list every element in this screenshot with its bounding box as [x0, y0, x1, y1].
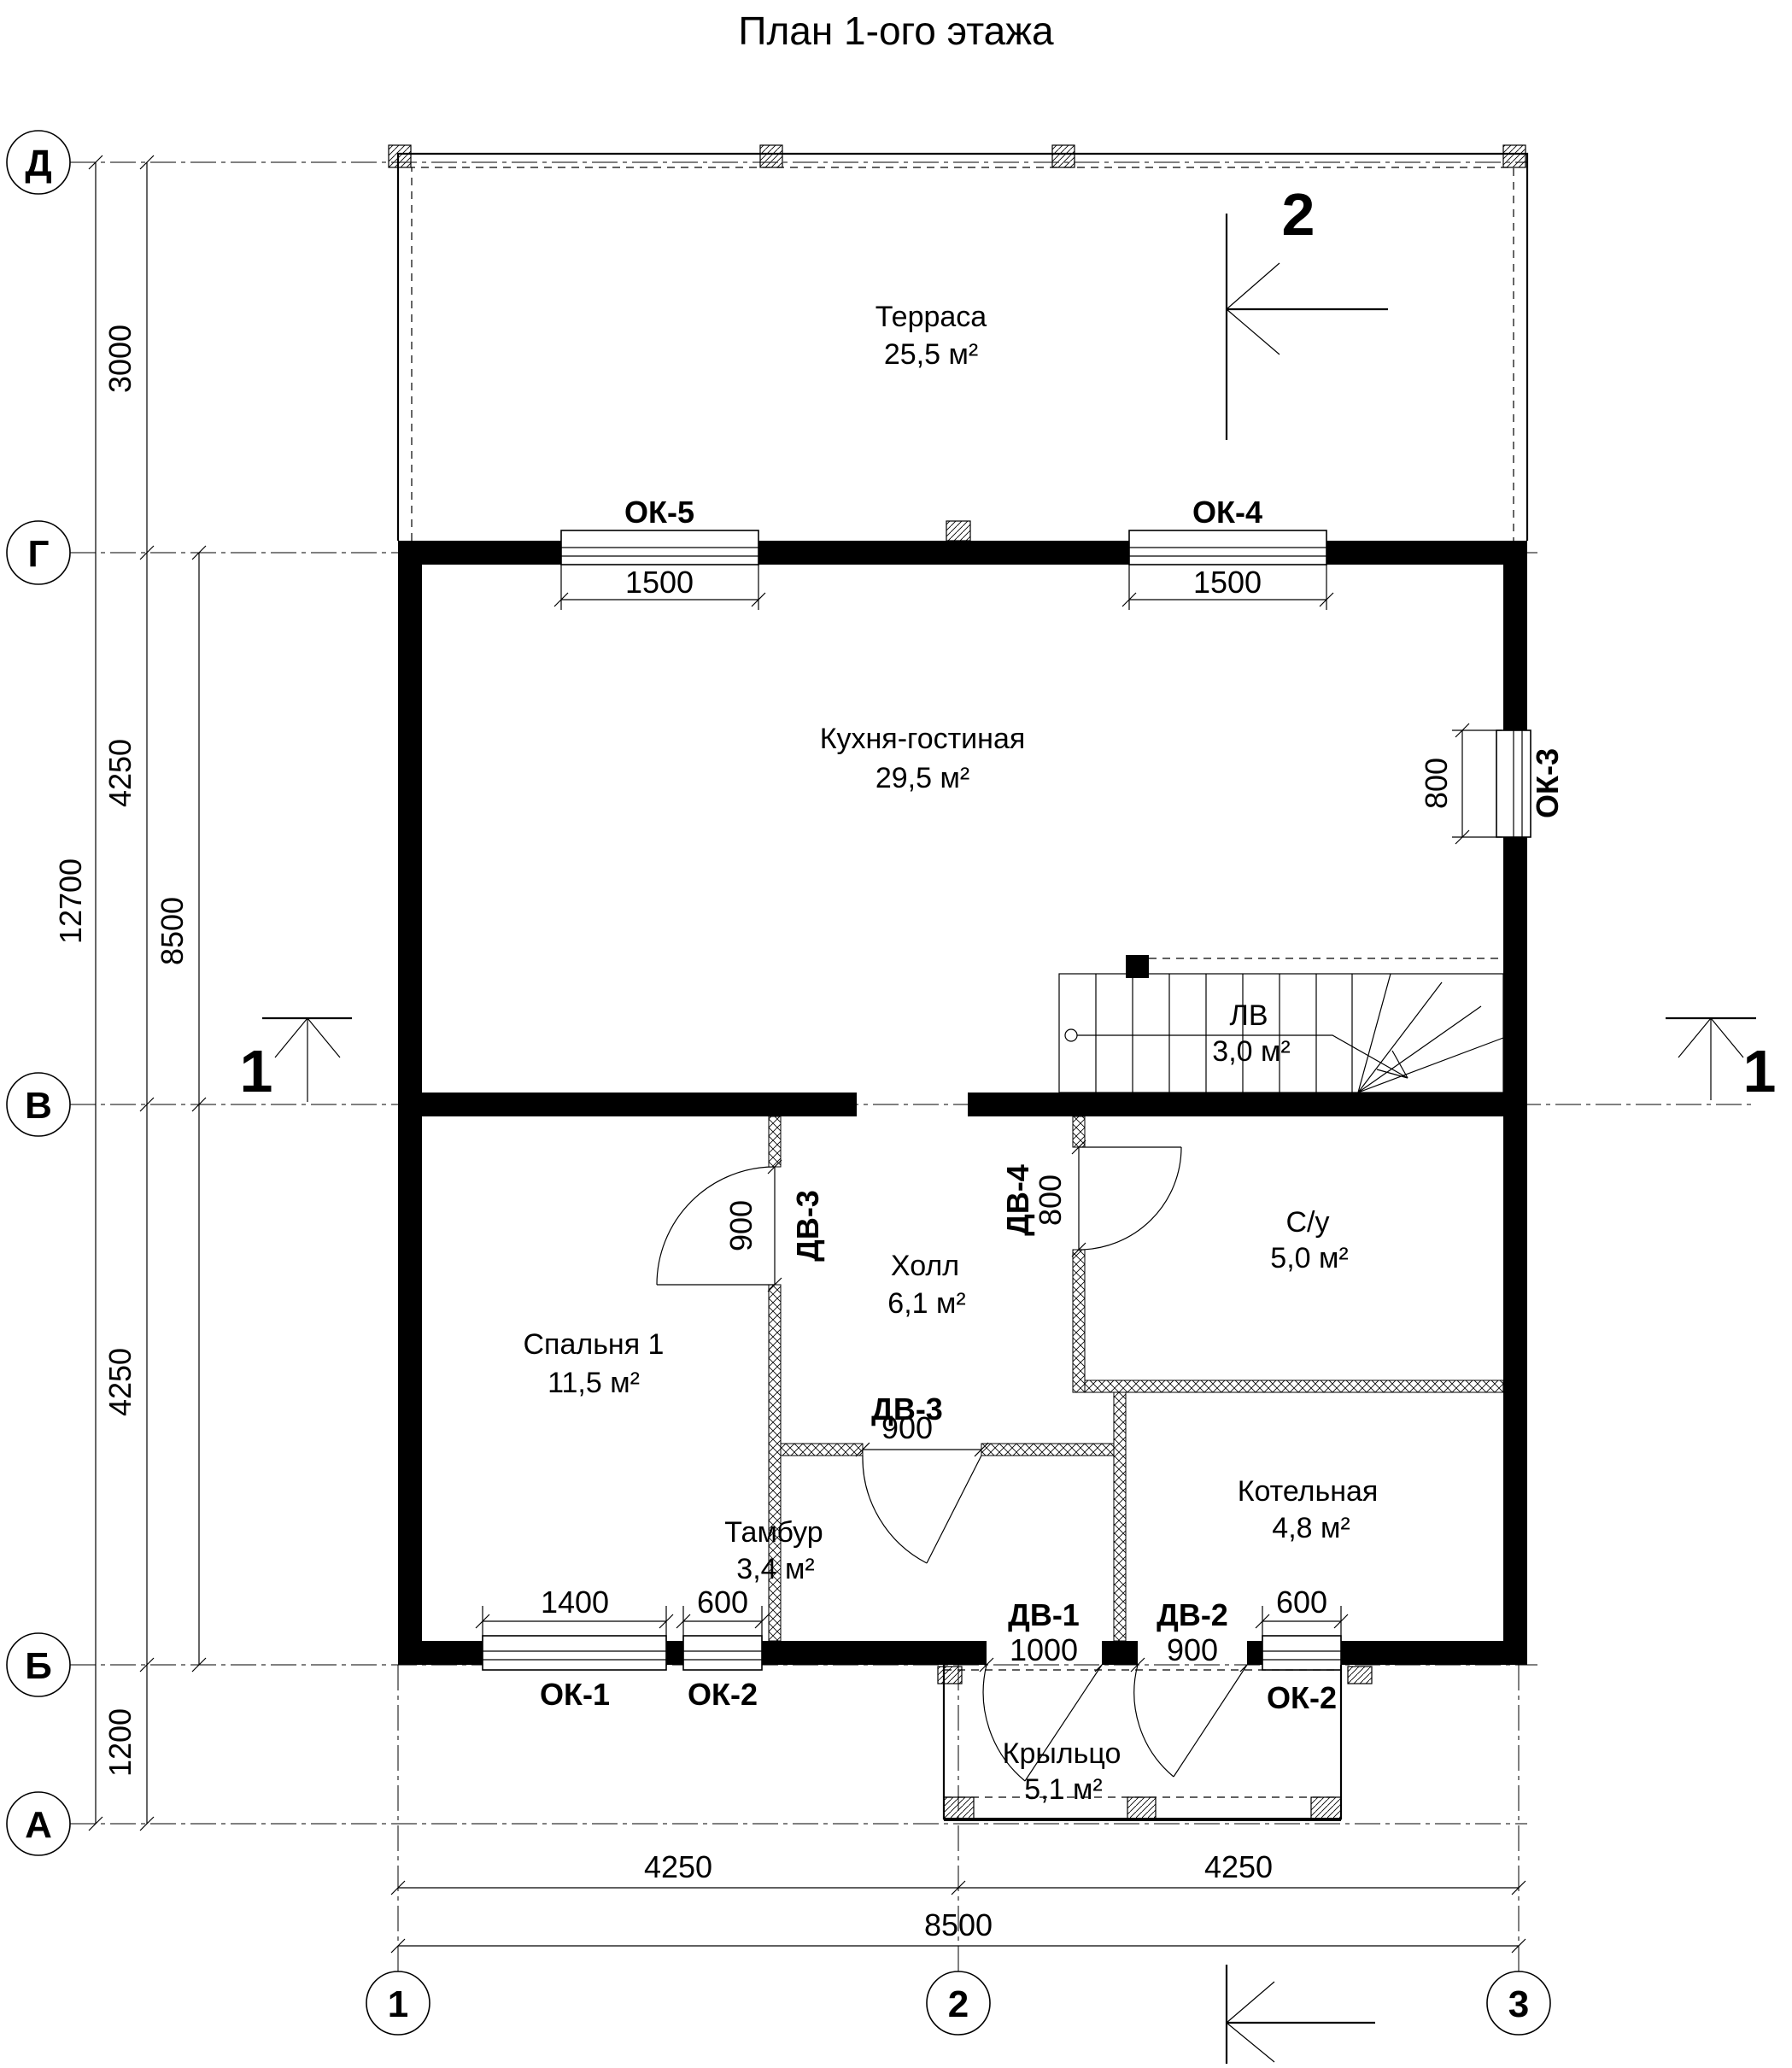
page-title: План 1-ого этажа — [738, 9, 1054, 53]
floor-plan-canvas: План 1-ого этажа 3000 4250 4250 1200 127… — [0, 0, 1792, 2064]
porch-area: 5,1 м² — [1024, 1773, 1102, 1806]
bathroom-area: 5,0 м² — [1270, 1242, 1348, 1274]
dim-text-8500-left: 8500 — [155, 897, 190, 965]
dim-text-4250-top: 4250 — [102, 739, 138, 807]
stair-column — [1126, 955, 1149, 978]
axis-label-a: А — [25, 1804, 52, 1846]
section-marks: 2 1 1 — [240, 181, 1777, 2064]
window-ok1-dim: 1400 — [541, 1585, 609, 1620]
hall-area: 6,1 м² — [887, 1287, 965, 1320]
terrace-post-mid1 — [760, 145, 782, 167]
stair-treads — [1096, 974, 1352, 1093]
stair-outline — [1059, 974, 1503, 1093]
wall-left — [398, 541, 422, 1665]
window-ok2-left: 600 ОК-2 — [676, 1585, 769, 1712]
terrace-name: Терраса — [876, 301, 987, 333]
porch-post-top-right — [1348, 1667, 1372, 1684]
axis-label-v: В — [25, 1085, 52, 1127]
partition-vestibule-left — [781, 1444, 863, 1456]
partition-bedroom-top — [769, 1116, 781, 1167]
window-ok3-label: ОК-3 — [1530, 748, 1565, 818]
axis-label-b: Б — [25, 1645, 52, 1687]
porch-post-mid — [1127, 1797, 1156, 1819]
door-dv3v-leaf — [927, 1456, 981, 1563]
door-dv3-bedroom: 900 ДВ-3 — [657, 1160, 825, 1292]
boiler-name: Котельная — [1238, 1475, 1379, 1508]
wall-v-1 — [422, 1093, 857, 1116]
section-2-label: 2 — [1282, 181, 1315, 248]
bathroom-name: С/у — [1286, 1206, 1330, 1239]
window-ok5-label: ОК-5 — [624, 495, 694, 530]
wall-bottom-1 — [398, 1641, 483, 1665]
wall-bottom-5 — [1247, 1641, 1262, 1665]
window-ok1-frame — [483, 1636, 666, 1670]
wall-top-2 — [758, 541, 1129, 565]
wall-bottom-3 — [762, 1641, 987, 1665]
window-ok2r-label: ОК-2 — [1267, 1680, 1337, 1715]
dim-text-8500-bottom: 8500 — [924, 1907, 993, 1942]
boiler-area: 4,8 м² — [1272, 1512, 1350, 1544]
terrace-post-axis2 — [946, 521, 970, 541]
door-dv1-label: ДВ-1 — [1008, 1597, 1080, 1632]
window-ok2l-frame — [683, 1636, 762, 1670]
axis-label-2: 2 — [948, 1983, 969, 2025]
axis-label-g: Г — [28, 533, 50, 575]
door-dv2-label: ДВ-2 — [1157, 1597, 1228, 1632]
door-dv4-label: ДВ-4 — [1000, 1164, 1035, 1236]
stair-winders — [1358, 974, 1503, 1093]
window-ok1: 1400 ОК-1 — [476, 1585, 673, 1712]
axis-label-3: 3 — [1508, 1983, 1529, 2025]
bedroom-name: Спальня 1 — [524, 1328, 665, 1361]
stairs-area: 3,0 м² — [1212, 1035, 1290, 1068]
window-ok2r-dim: 600 — [1276, 1585, 1327, 1620]
dim-text-4250-br: 4250 — [1204, 1849, 1273, 1884]
wall-bottom-4 — [1102, 1641, 1138, 1665]
window-ok4-label: ОК-4 — [1192, 495, 1262, 530]
section-1-right: 1 — [1666, 1018, 1776, 1104]
porch-post-right — [1311, 1797, 1341, 1819]
dim-text-12700: 12700 — [53, 858, 88, 944]
staircase: ЛВ 3,0 м² — [1059, 958, 1503, 1093]
window-ok5-dim: 1500 — [625, 565, 694, 600]
hall-name: Холл — [891, 1250, 959, 1282]
vestibule-area: 3,4 м² — [736, 1553, 814, 1585]
door-dv2: ДВ-2 900 — [1134, 1597, 1247, 1777]
stair-walkline-start — [1065, 1029, 1077, 1041]
door-dv4-arc — [1079, 1147, 1181, 1250]
section-2-bottom — [1227, 1965, 1375, 2064]
door-dv3v-arc — [863, 1456, 927, 1563]
kitchen-name: Кухня-гостиная — [820, 723, 1026, 755]
wall-top-3 — [1326, 541, 1527, 565]
stair-walkline-arrow — [1377, 1051, 1408, 1078]
dim-text-4250-bottom: 4250 — [102, 1348, 138, 1416]
drawing-sheet: План 1-ого этажа 3000 4250 4250 1200 127… — [0, 0, 1792, 2064]
vestibule-name: Тамбур — [724, 1516, 823, 1549]
window-ok2l-label: ОК-2 — [688, 1677, 758, 1712]
terrace-post-right — [1503, 145, 1526, 167]
door-dv4: ДВ-4 800 — [1000, 1140, 1181, 1257]
axis-bubbles: Д Г В Б А 1 2 3 — [7, 131, 1550, 2035]
window-ok2-right: 600 ОК-2 — [1256, 1585, 1348, 1715]
section-2-top: 2 — [1227, 181, 1388, 440]
door-dv2-arc — [1134, 1665, 1174, 1777]
section-1-left-label: 1 — [240, 1038, 273, 1104]
partition-bath-bottom — [1073, 1250, 1085, 1392]
partitions — [769, 1116, 1503, 1641]
wall-bottom-6 — [1341, 1641, 1527, 1665]
door-dv2-dim: 900 — [1167, 1632, 1218, 1667]
partition-boiler-left — [1114, 1392, 1126, 1641]
section-1-right-label: 1 — [1743, 1038, 1777, 1104]
dim-text-3000: 3000 — [102, 325, 138, 393]
door-dv3-vestibule: ДВ-3 900 — [856, 1391, 988, 1563]
bottom-dimension-chains: 4250 4250 8500 — [391, 1849, 1526, 1953]
axis-label-d: Д — [25, 143, 51, 185]
terrace-post-left — [389, 145, 411, 167]
stairs-name: ЛВ — [1230, 999, 1268, 1032]
partition-vestibule-right — [981, 1444, 1114, 1456]
porch-name: Крыльцо — [1003, 1737, 1121, 1770]
wall-v-2 — [968, 1093, 1503, 1116]
dim-text-1200: 1200 — [102, 1708, 138, 1777]
terrace-post-mid2 — [1052, 145, 1075, 167]
window-ok4-dim: 1500 — [1193, 565, 1262, 600]
wall-right-1 — [1503, 541, 1527, 730]
door-dv1-dim: 1000 — [1010, 1632, 1078, 1667]
bedroom-area: 11,5 м² — [548, 1367, 640, 1399]
dim-text-4250-bl: 4250 — [644, 1849, 712, 1884]
door-dv3b-label: ДВ-3 — [790, 1190, 825, 1262]
window-ok3: 800 ОК-3 — [1419, 724, 1565, 844]
window-ok5: ОК-5 1500 — [554, 495, 765, 610]
door-dv2-leaf — [1174, 1665, 1247, 1777]
porch-post-top-left — [938, 1667, 962, 1684]
door-dv4-dim: 800 — [1033, 1175, 1068, 1226]
wall-top-1 — [398, 541, 561, 565]
door-dv3v-dim: 900 — [881, 1410, 933, 1445]
window-ok4: ОК-4 1500 — [1122, 495, 1333, 610]
left-dimension-chains: 3000 4250 4250 1200 12700 8500 — [53, 155, 206, 1831]
terrace-area: 25,5 м² — [884, 338, 978, 371]
window-ok1-label: ОК-1 — [540, 1677, 610, 1712]
section-1-left: 1 — [240, 1018, 352, 1104]
partition-bath-boiler — [1085, 1380, 1503, 1392]
axis-label-1: 1 — [388, 1983, 408, 2025]
partition-bedroom-bottom — [769, 1285, 781, 1641]
window-ok2r-frame — [1262, 1636, 1341, 1670]
window-ok2l-dim: 600 — [697, 1585, 748, 1620]
porch-post-left — [944, 1797, 974, 1819]
door-dv3b-dim: 900 — [723, 1200, 758, 1251]
window-ok3-dim: 800 — [1419, 758, 1454, 809]
wall-bottom-2 — [666, 1641, 683, 1665]
wall-right-2 — [1503, 837, 1527, 1665]
kitchen-area: 29,5 м² — [876, 762, 969, 794]
